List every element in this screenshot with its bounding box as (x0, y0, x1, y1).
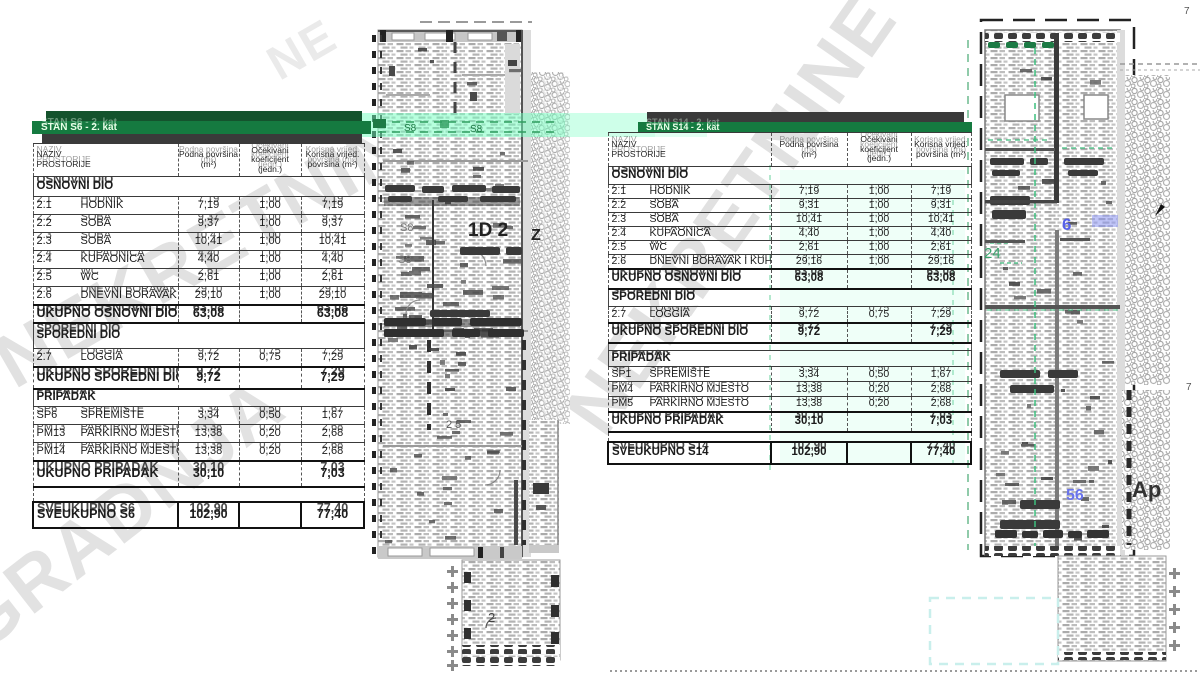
svg-text:7: 7 (1184, 6, 1190, 17)
svg-text:2: 2 (488, 610, 495, 625)
svg-text:24: 24 (984, 245, 1001, 262)
svg-text:S8: S8 (398, 254, 411, 266)
svg-text:7: 7 (1186, 382, 1192, 393)
svg-text:1D 2: 1D 2 (468, 220, 508, 241)
svg-text:S8: S8 (470, 124, 483, 135)
svg-text:Ap: Ap (1132, 477, 1161, 502)
svg-text:S8: S8 (400, 222, 413, 234)
svg-text:S8: S8 (404, 123, 417, 134)
svg-text:56: 56 (1066, 487, 1084, 504)
svg-text:6: 6 (1062, 215, 1071, 234)
svg-text:Z: Z (531, 227, 541, 244)
